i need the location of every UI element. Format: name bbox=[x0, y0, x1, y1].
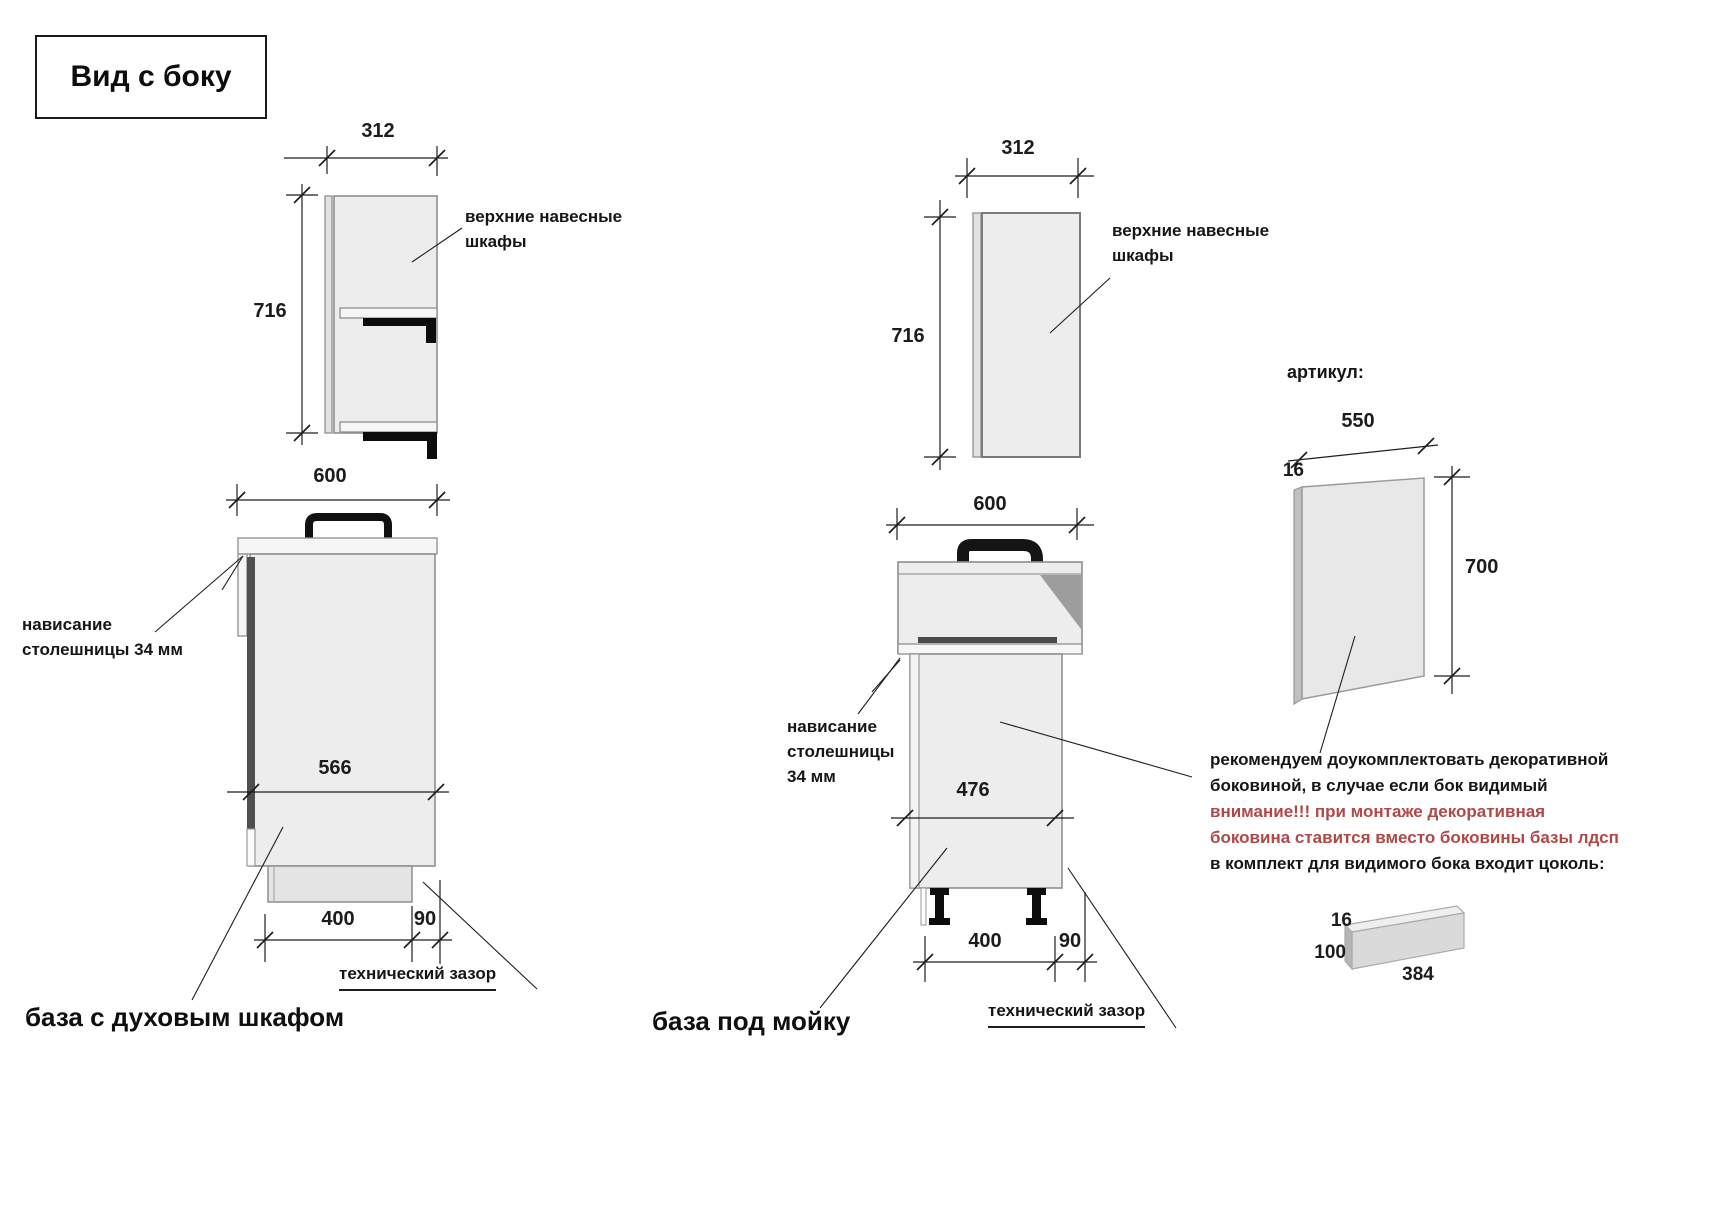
artikul-heading: артикул: bbox=[1287, 360, 1364, 385]
dim-label-90-oven: 90 bbox=[401, 908, 449, 931]
dim-label-384-plinth: 384 bbox=[1392, 964, 1444, 986]
callout-wall-mid-line2: шкафы bbox=[1112, 243, 1269, 268]
dim-550-panel bbox=[1288, 438, 1438, 468]
overhang-callout-sink: нависание столешницы 34 мм bbox=[787, 714, 894, 789]
dim-label-400-sink: 400 bbox=[935, 930, 1035, 953]
panel-warning-line1: внимание!!! при монтаже декоративная bbox=[1210, 802, 1545, 822]
dim-label-476-sink: 476 bbox=[923, 779, 1023, 802]
panel-note-line3: в комплект для видимого бока входит цоко… bbox=[1210, 854, 1605, 874]
overhang-oven-line2: столешницы 34 мм bbox=[22, 637, 183, 662]
sink-base-body bbox=[910, 654, 1062, 888]
sink-drain-bar bbox=[918, 637, 1057, 643]
overhang-sink-line2: столешницы bbox=[787, 739, 894, 764]
callout-wall-left: верхние навесные шкафы bbox=[465, 204, 622, 254]
leader-caption-sink bbox=[820, 848, 947, 1008]
plinth bbox=[268, 866, 412, 902]
overhang-callout-oven: нависание столешницы 34 мм bbox=[22, 612, 183, 662]
overhang-sink-line3: 34 мм bbox=[787, 764, 894, 789]
door-edge-strip bbox=[247, 829, 255, 866]
callout-wall-left-line2: шкафы bbox=[465, 229, 622, 254]
side-view-drawing-sheet: Вид с боку 312 716 верхние навесные шкаф… bbox=[0, 0, 1726, 1222]
oven-base-body bbox=[250, 554, 435, 866]
sink-base-drawing bbox=[898, 545, 1082, 925]
plinth-part-drawing bbox=[1345, 906, 1464, 969]
dim-label-height-wall-mid: 716 bbox=[878, 325, 938, 348]
overhang-sink-line1: нависание bbox=[787, 714, 894, 739]
dim-label-100-plinth: 100 bbox=[1296, 942, 1346, 964]
callout-wall-left-line1: верхние навесные bbox=[465, 204, 622, 229]
countertop-overhang-edge bbox=[238, 554, 247, 636]
panel-note-line1: рекомендуем доукомплектовать декоративно… bbox=[1210, 750, 1608, 770]
title-box: Вид с боку bbox=[35, 35, 267, 119]
dim-312-wall-mid bbox=[955, 158, 1094, 198]
leader-caption-oven bbox=[192, 827, 283, 1000]
adjustable-leg-front bbox=[929, 888, 950, 925]
adjustable-leg-back bbox=[1026, 888, 1047, 925]
dim-600-oven-base bbox=[226, 484, 450, 516]
countertop bbox=[238, 538, 437, 554]
dim-label-566-oven: 566 bbox=[285, 757, 385, 780]
countertop-front-edge bbox=[898, 644, 1082, 654]
caption-sink-base: база под мойку bbox=[652, 1006, 850, 1037]
door-bottom-strip bbox=[921, 888, 926, 925]
dim-label-550-panel: 550 bbox=[1312, 410, 1404, 433]
tech-gap-label-oven: технический зазор bbox=[339, 961, 496, 991]
caption-oven-base: база с духовым шкафом bbox=[25, 1002, 344, 1033]
dim-700-panel bbox=[1434, 466, 1470, 694]
oven-base-drawing bbox=[238, 517, 437, 902]
dim-label-600-sink: 600 bbox=[940, 493, 1040, 516]
panel-warning-line2: боковина ставится вместо боковины базы л… bbox=[1210, 828, 1619, 848]
page-title: Вид с боку bbox=[70, 60, 231, 94]
callout-wall-mid: верхние навесные шкафы bbox=[1112, 218, 1269, 268]
dim-label-width-wall-left: 312 bbox=[322, 120, 434, 143]
decor-panel-drawing bbox=[1294, 478, 1424, 704]
dim-label-400-oven: 400 bbox=[288, 908, 388, 931]
panel-note-line2: боковиной, в случае если бок видимый bbox=[1210, 776, 1548, 796]
tech-gap-label-sink: технический зазор bbox=[988, 998, 1145, 1028]
overhang-oven-line1: нависание bbox=[22, 612, 183, 637]
dim-label-height-wall-left: 716 bbox=[240, 300, 300, 323]
oven-handle bbox=[309, 517, 388, 539]
dim-label-16-panel: 16 bbox=[1266, 460, 1304, 482]
callout-wall-mid-line1: верхние навесные bbox=[1112, 218, 1269, 243]
wall-cabinet-mid-drawing bbox=[973, 213, 1080, 457]
leader-overhang-sink-2 bbox=[872, 660, 900, 692]
dim-label-700-panel: 700 bbox=[1465, 556, 1520, 579]
dim-label-600-oven: 600 bbox=[280, 465, 380, 488]
door-edge-strip bbox=[910, 654, 919, 888]
dim-312-wall-left bbox=[284, 146, 448, 176]
dim-label-width-wall-mid: 312 bbox=[962, 137, 1074, 160]
technical-drawing bbox=[0, 0, 1726, 1222]
wall-cabinet-left-drawing bbox=[325, 196, 437, 459]
dim-label-90-sink: 90 bbox=[1046, 930, 1094, 953]
dim-label-16-plinth: 16 bbox=[1310, 910, 1352, 932]
